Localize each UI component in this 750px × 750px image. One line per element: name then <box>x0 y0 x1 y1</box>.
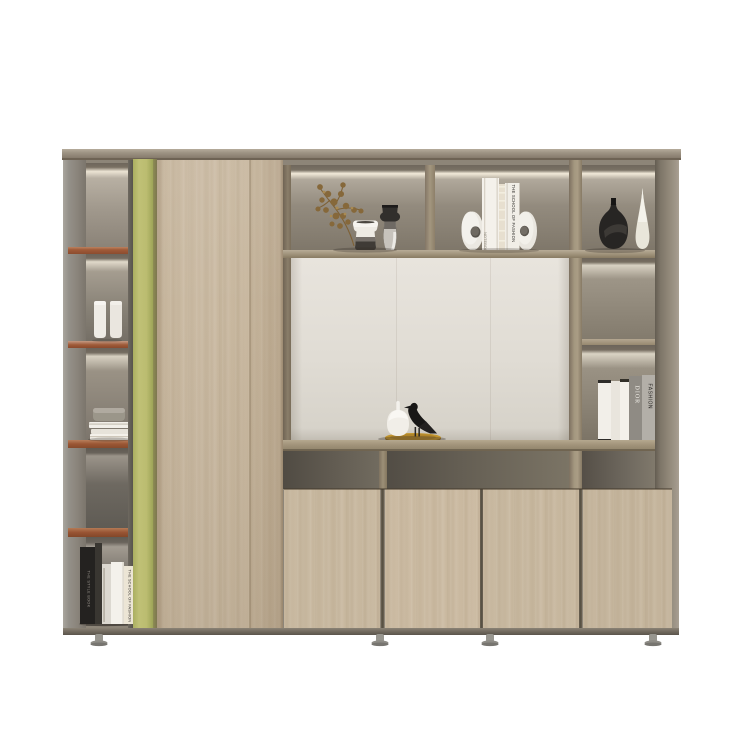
svg-text:THE SCHOOL OF FASHION: THE SCHOOL OF FASHION <box>511 185 516 243</box>
svg-text:NOTEBOOK: NOTEBOOK <box>483 232 488 251</box>
svg-text:FASHION: FASHION <box>647 384 653 409</box>
svg-text:THE SCHOOL OF FASHION: THE SCHOOL OF FASHION <box>128 570 132 623</box>
svg-text:THE STYLE BOOK: THE STYLE BOOK <box>87 571 91 608</box>
svg-text:DIOR: DIOR <box>634 386 640 405</box>
